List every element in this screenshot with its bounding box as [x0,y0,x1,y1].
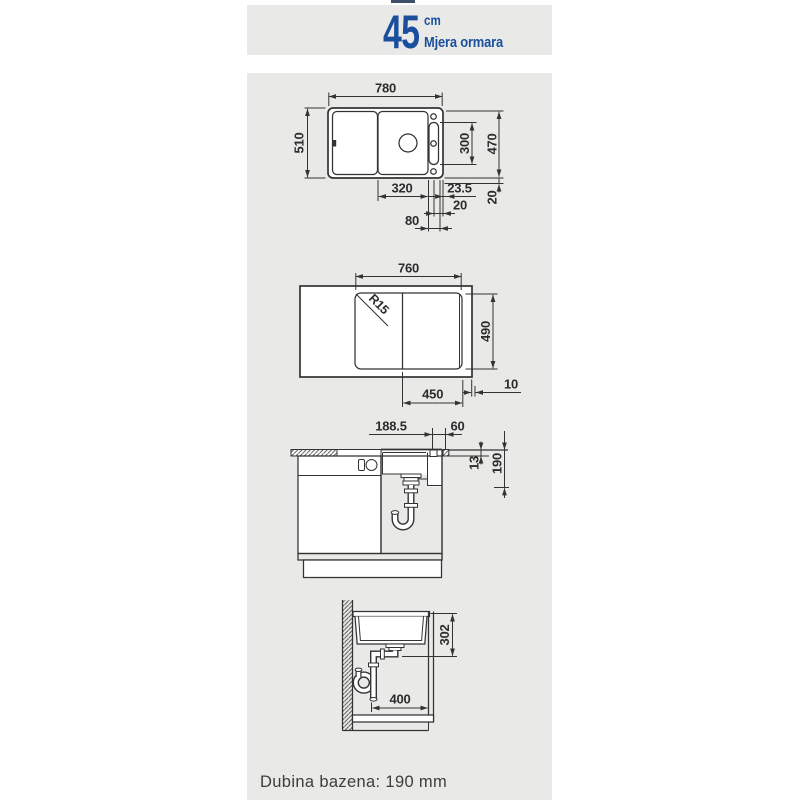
dim-cutout-height: 490 [478,321,493,342]
coupling-nut [381,649,385,659]
coupling-nut [405,489,418,493]
strainer-flange [386,644,404,648]
technical-drawing-panel: 780 510 300 470 20 320 23.5 20 80 [247,73,552,800]
dim-cutout-bowl: 450 [422,387,443,402]
bowl-fill [355,617,427,645]
dim-rail-width: 80 [405,213,419,228]
sink-rim [353,612,430,617]
dim-rim-height: 13 [467,456,482,470]
front-section-diagram: 302 400 [343,600,458,731]
dim-cutout-depth: 470 [485,133,500,154]
dim-cutout-width: 760 [398,261,419,276]
dim-rear-gap: 20 [453,198,467,213]
dim-tap-offset: 60 [450,419,464,434]
cabinet-front [298,456,381,554]
sink-drawing-svg: 780 510 300 470 20 320 23.5 20 80 [247,73,552,800]
cabinet-size-label: Mjera ormara [424,34,503,51]
cabinet-size-unit-block: cm Mjera ormara [424,13,503,51]
cabinet-size-header: 45 cm Mjera ormara [247,5,552,55]
front-detail-circle [366,460,377,471]
tap-hole [431,114,437,120]
cabinet-size-value: 45 [383,8,419,55]
cutout-view-diagram: 760 R15 490 450 10 [300,261,521,408]
countertop-section [291,450,381,457]
cropped-logo-remnant [391,0,415,3]
dim-edge-offset: 23.5 [447,181,472,196]
dim-bowl-width: 320 [391,181,412,196]
sink-outline [328,108,443,178]
countertop-band [337,450,381,457]
tap-hole [431,141,437,147]
dim-top-height: 510 [292,132,307,153]
drain-and-siphon [391,474,421,527]
dim-edge-gap: 10 [504,377,518,392]
dim-clearance-width: 400 [389,692,410,707]
cabinet-size-unit: cm [424,13,503,29]
overflow-mark [333,140,336,147]
tap-hole [431,169,437,175]
drain-hole [399,134,417,152]
dim-side-gap: 20 [485,190,500,204]
coupling-nut [369,663,379,667]
bowl-depth-note: Dubina bazena: 190 mm [260,773,447,793]
pipe-end-cap [355,668,362,671]
sink-ledge-fill [428,474,443,487]
tap-hole-section [430,450,437,457]
dim-top-width: 780 [375,81,396,96]
dim-tap-rail: 300 [457,133,472,154]
plinth [304,560,442,578]
pipe-end-cap [391,511,398,515]
side-section-diagram: 188.5 60 13 190 [291,419,509,578]
wall-hatch [343,600,353,731]
spec-sheet-page: 45 cm Mjera ormara [0,0,800,800]
dim-drain-height: 302 [437,624,452,645]
pipe-end-cap [370,698,377,702]
dim-drain-offset: 188.5 [375,419,407,434]
coupling-nut [405,504,418,508]
dim-bowl-depth: 190 [490,453,505,474]
strainer-flange [401,474,421,478]
front-detail-rect [359,460,365,471]
cabinet-bottom [353,715,434,722]
top-view-diagram: 780 510 300 470 20 320 23.5 20 80 [292,81,504,232]
